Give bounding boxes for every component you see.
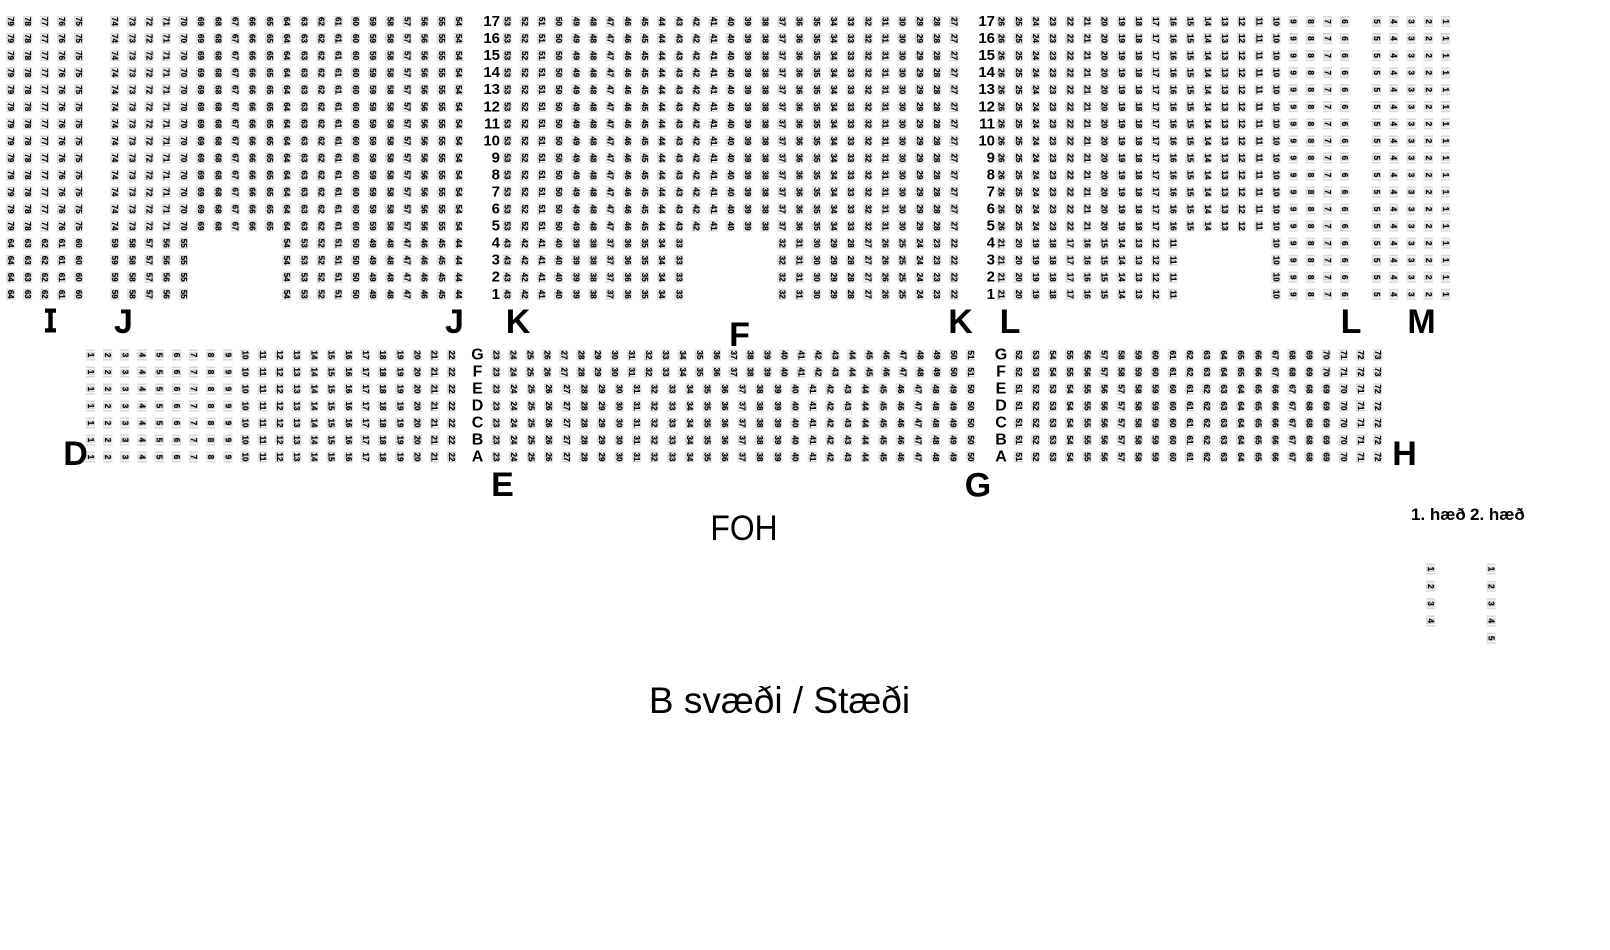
svg-text:33: 33 bbox=[846, 102, 855, 111]
svg-text:11: 11 bbox=[979, 115, 995, 132]
svg-text:55: 55 bbox=[437, 51, 446, 60]
svg-text:33: 33 bbox=[674, 290, 683, 299]
svg-text:13: 13 bbox=[1134, 273, 1143, 282]
svg-text:23: 23 bbox=[1048, 205, 1057, 214]
svg-text:38: 38 bbox=[760, 119, 769, 128]
svg-text:58: 58 bbox=[385, 68, 394, 77]
svg-text:31: 31 bbox=[881, 68, 890, 77]
svg-text:26: 26 bbox=[997, 188, 1006, 197]
svg-text:47: 47 bbox=[606, 136, 615, 145]
svg-text:74: 74 bbox=[110, 119, 119, 128]
svg-text:52: 52 bbox=[520, 34, 529, 43]
svg-text:20: 20 bbox=[1100, 222, 1109, 231]
svg-text:16: 16 bbox=[1168, 205, 1177, 214]
svg-text:53: 53 bbox=[299, 239, 308, 248]
svg-text:69: 69 bbox=[196, 119, 205, 128]
svg-text:52: 52 bbox=[317, 239, 326, 248]
svg-text:9: 9 bbox=[492, 149, 500, 166]
svg-text:43: 43 bbox=[674, 153, 683, 162]
svg-text:20: 20 bbox=[1014, 239, 1023, 248]
svg-text:77: 77 bbox=[40, 102, 49, 111]
svg-text:62: 62 bbox=[40, 290, 49, 299]
svg-text:60: 60 bbox=[351, 85, 360, 94]
svg-text:18: 18 bbox=[1048, 273, 1057, 282]
svg-text:40: 40 bbox=[726, 171, 735, 180]
svg-text:64: 64 bbox=[282, 68, 291, 77]
svg-text:3: 3 bbox=[987, 252, 995, 269]
svg-text:76: 76 bbox=[57, 102, 66, 111]
svg-text:46: 46 bbox=[420, 256, 429, 265]
svg-text:16: 16 bbox=[1168, 171, 1177, 180]
svg-text:36: 36 bbox=[623, 273, 632, 282]
svg-text:72: 72 bbox=[145, 68, 154, 77]
svg-text:50: 50 bbox=[554, 102, 563, 111]
svg-text:4: 4 bbox=[1389, 156, 1398, 161]
svg-text:15: 15 bbox=[1186, 171, 1195, 180]
svg-text:42: 42 bbox=[692, 171, 701, 180]
svg-text:66: 66 bbox=[248, 51, 257, 60]
svg-text:75: 75 bbox=[74, 205, 83, 214]
svg-text:6: 6 bbox=[1340, 190, 1349, 195]
svg-text:75: 75 bbox=[74, 188, 83, 197]
svg-text:16: 16 bbox=[1168, 222, 1177, 231]
svg-text:62: 62 bbox=[317, 136, 326, 145]
svg-text:34: 34 bbox=[657, 239, 666, 248]
svg-text:23: 23 bbox=[1048, 34, 1057, 43]
svg-text:27: 27 bbox=[949, 51, 958, 60]
svg-text:27: 27 bbox=[863, 239, 872, 248]
svg-text:62: 62 bbox=[317, 68, 326, 77]
svg-text:36: 36 bbox=[795, 188, 804, 197]
svg-text:8: 8 bbox=[492, 167, 500, 184]
svg-text:54: 54 bbox=[454, 17, 463, 26]
svg-text:12: 12 bbox=[483, 98, 500, 115]
svg-text:50: 50 bbox=[351, 239, 360, 248]
svg-text:40: 40 bbox=[726, 102, 735, 111]
svg-text:34: 34 bbox=[657, 273, 666, 282]
svg-text:33: 33 bbox=[846, 68, 855, 77]
svg-text:55: 55 bbox=[437, 222, 446, 231]
svg-text:11: 11 bbox=[1254, 188, 1263, 197]
svg-text:74: 74 bbox=[110, 136, 119, 145]
svg-text:15: 15 bbox=[1100, 239, 1109, 248]
svg-text:29: 29 bbox=[915, 17, 924, 26]
svg-text:9: 9 bbox=[1289, 190, 1298, 195]
svg-text:10: 10 bbox=[1272, 34, 1281, 43]
svg-text:39: 39 bbox=[743, 188, 752, 197]
svg-text:38: 38 bbox=[589, 239, 598, 248]
svg-text:50: 50 bbox=[554, 85, 563, 94]
svg-text:61: 61 bbox=[334, 222, 343, 231]
svg-text:14: 14 bbox=[978, 64, 995, 81]
svg-text:20: 20 bbox=[1100, 68, 1109, 77]
svg-text:14: 14 bbox=[1117, 256, 1126, 265]
svg-text:69: 69 bbox=[196, 136, 205, 145]
svg-text:3: 3 bbox=[1407, 122, 1416, 127]
svg-text:14: 14 bbox=[1203, 68, 1212, 77]
svg-text:61: 61 bbox=[334, 34, 343, 43]
svg-text:22: 22 bbox=[949, 273, 958, 282]
svg-text:64: 64 bbox=[282, 119, 291, 128]
svg-text:33: 33 bbox=[674, 256, 683, 265]
svg-text:4: 4 bbox=[1389, 19, 1398, 24]
svg-text:68: 68 bbox=[213, 34, 222, 43]
svg-text:26: 26 bbox=[997, 51, 1006, 60]
svg-text:22: 22 bbox=[1065, 34, 1074, 43]
svg-text:4: 4 bbox=[1389, 139, 1398, 144]
svg-text:73: 73 bbox=[127, 68, 136, 77]
svg-text:42: 42 bbox=[692, 222, 701, 231]
svg-text:25: 25 bbox=[1014, 119, 1023, 128]
svg-text:75: 75 bbox=[74, 119, 83, 128]
svg-text:14: 14 bbox=[1203, 17, 1212, 26]
svg-text:47: 47 bbox=[606, 51, 615, 60]
svg-text:69: 69 bbox=[196, 188, 205, 197]
svg-text:46: 46 bbox=[623, 153, 632, 162]
svg-text:38: 38 bbox=[760, 34, 769, 43]
svg-text:24: 24 bbox=[1031, 68, 1040, 77]
svg-text:58: 58 bbox=[385, 153, 394, 162]
svg-text:44: 44 bbox=[657, 222, 666, 231]
svg-text:37: 37 bbox=[778, 153, 787, 162]
svg-text:8: 8 bbox=[1306, 19, 1315, 24]
svg-text:77: 77 bbox=[40, 222, 49, 231]
svg-text:16: 16 bbox=[1168, 85, 1177, 94]
svg-text:78: 78 bbox=[23, 34, 32, 43]
svg-text:10: 10 bbox=[1272, 17, 1281, 26]
svg-text:63: 63 bbox=[299, 222, 308, 231]
svg-text:8: 8 bbox=[1306, 36, 1315, 41]
svg-text:26: 26 bbox=[997, 34, 1006, 43]
svg-text:65: 65 bbox=[265, 68, 274, 77]
svg-text:70: 70 bbox=[179, 17, 188, 26]
svg-text:57: 57 bbox=[403, 34, 412, 43]
svg-text:20: 20 bbox=[1014, 256, 1023, 265]
svg-text:34: 34 bbox=[657, 290, 666, 299]
svg-text:72: 72 bbox=[145, 222, 154, 231]
svg-text:36: 36 bbox=[795, 85, 804, 94]
svg-text:63: 63 bbox=[299, 119, 308, 128]
svg-text:58: 58 bbox=[385, 34, 394, 43]
svg-text:38: 38 bbox=[589, 273, 598, 282]
svg-text:54: 54 bbox=[454, 51, 463, 60]
svg-text:7: 7 bbox=[1323, 122, 1332, 127]
svg-text:20: 20 bbox=[1100, 205, 1109, 214]
svg-text:78: 78 bbox=[23, 17, 32, 26]
svg-text:58: 58 bbox=[385, 85, 394, 94]
svg-text:9: 9 bbox=[1289, 292, 1298, 297]
svg-text:51: 51 bbox=[537, 51, 546, 60]
svg-text:42: 42 bbox=[520, 239, 529, 248]
svg-text:63: 63 bbox=[23, 239, 32, 248]
svg-text:12: 12 bbox=[1237, 85, 1246, 94]
svg-text:42: 42 bbox=[520, 290, 529, 299]
svg-text:42: 42 bbox=[520, 256, 529, 265]
svg-text:35: 35 bbox=[812, 119, 821, 128]
svg-text:31: 31 bbox=[881, 85, 890, 94]
svg-text:49: 49 bbox=[571, 188, 580, 197]
svg-text:31: 31 bbox=[881, 34, 890, 43]
svg-text:16: 16 bbox=[1168, 34, 1177, 43]
svg-text:24: 24 bbox=[1031, 188, 1040, 197]
svg-text:63: 63 bbox=[299, 205, 308, 214]
svg-text:76: 76 bbox=[57, 205, 66, 214]
svg-text:72: 72 bbox=[145, 85, 154, 94]
svg-text:79: 79 bbox=[6, 222, 15, 231]
svg-text:3: 3 bbox=[492, 252, 500, 269]
svg-text:31: 31 bbox=[881, 102, 890, 111]
svg-text:33: 33 bbox=[674, 239, 683, 248]
svg-text:46: 46 bbox=[420, 239, 429, 248]
svg-text:52: 52 bbox=[520, 17, 529, 26]
svg-text:30: 30 bbox=[898, 102, 907, 111]
svg-text:36: 36 bbox=[795, 136, 804, 145]
svg-text:78: 78 bbox=[23, 153, 32, 162]
svg-text:48: 48 bbox=[589, 17, 598, 26]
svg-text:69: 69 bbox=[196, 153, 205, 162]
svg-text:23: 23 bbox=[932, 239, 941, 248]
svg-text:77: 77 bbox=[40, 68, 49, 77]
svg-text:32: 32 bbox=[863, 17, 872, 26]
svg-text:11: 11 bbox=[1168, 239, 1177, 248]
svg-text:27: 27 bbox=[949, 188, 958, 197]
svg-text:73: 73 bbox=[127, 119, 136, 128]
svg-text:66: 66 bbox=[248, 171, 257, 180]
svg-text:36: 36 bbox=[623, 239, 632, 248]
svg-text:39: 39 bbox=[743, 171, 752, 180]
svg-text:6: 6 bbox=[1340, 105, 1349, 110]
svg-text:24: 24 bbox=[1031, 136, 1040, 145]
svg-text:29: 29 bbox=[915, 153, 924, 162]
svg-text:78: 78 bbox=[23, 51, 32, 60]
svg-text:77: 77 bbox=[40, 119, 49, 128]
svg-text:13: 13 bbox=[1134, 290, 1143, 299]
svg-text:48: 48 bbox=[589, 188, 598, 197]
svg-text:9: 9 bbox=[1289, 156, 1298, 161]
svg-text:46: 46 bbox=[623, 68, 632, 77]
svg-text:28: 28 bbox=[932, 17, 941, 26]
svg-text:63: 63 bbox=[299, 51, 308, 60]
svg-text:6: 6 bbox=[1340, 258, 1349, 263]
svg-text:38: 38 bbox=[760, 222, 769, 231]
svg-text:41: 41 bbox=[709, 153, 718, 162]
svg-text:49: 49 bbox=[368, 256, 377, 265]
svg-text:11: 11 bbox=[1254, 85, 1263, 94]
svg-text:42: 42 bbox=[520, 273, 529, 282]
svg-text:49: 49 bbox=[571, 205, 580, 214]
svg-text:71: 71 bbox=[162, 119, 171, 128]
svg-text:67: 67 bbox=[231, 51, 240, 60]
svg-text:54: 54 bbox=[454, 205, 463, 214]
svg-text:56: 56 bbox=[420, 102, 429, 111]
svg-text:51: 51 bbox=[537, 136, 546, 145]
svg-text:10: 10 bbox=[483, 132, 500, 149]
svg-text:22: 22 bbox=[1065, 51, 1074, 60]
svg-text:65: 65 bbox=[265, 205, 274, 214]
svg-text:73: 73 bbox=[127, 34, 136, 43]
svg-text:51: 51 bbox=[537, 85, 546, 94]
svg-text:53: 53 bbox=[503, 222, 512, 231]
svg-text:72: 72 bbox=[145, 171, 154, 180]
svg-text:57: 57 bbox=[403, 68, 412, 77]
svg-text:71: 71 bbox=[162, 17, 171, 26]
svg-text:60: 60 bbox=[351, 222, 360, 231]
svg-text:30: 30 bbox=[812, 273, 821, 282]
svg-text:9: 9 bbox=[1289, 224, 1298, 229]
svg-text:38: 38 bbox=[760, 17, 769, 26]
svg-text:45: 45 bbox=[640, 119, 649, 128]
svg-text:50: 50 bbox=[351, 290, 360, 299]
svg-text:44: 44 bbox=[657, 102, 666, 111]
svg-text:34: 34 bbox=[829, 85, 838, 94]
svg-text:27: 27 bbox=[949, 68, 958, 77]
svg-text:78: 78 bbox=[23, 102, 32, 111]
svg-text:50: 50 bbox=[554, 51, 563, 60]
svg-text:49: 49 bbox=[571, 85, 580, 94]
svg-text:15: 15 bbox=[1186, 68, 1195, 77]
svg-text:54: 54 bbox=[454, 136, 463, 145]
svg-text:76: 76 bbox=[57, 136, 66, 145]
svg-text:52: 52 bbox=[520, 68, 529, 77]
svg-text:41: 41 bbox=[709, 17, 718, 26]
svg-text:75: 75 bbox=[74, 17, 83, 26]
svg-text:40: 40 bbox=[554, 290, 563, 299]
svg-text:26: 26 bbox=[997, 222, 1006, 231]
svg-text:40: 40 bbox=[726, 119, 735, 128]
svg-text:59: 59 bbox=[110, 273, 119, 282]
svg-text:55: 55 bbox=[437, 68, 446, 77]
svg-text:51: 51 bbox=[537, 102, 546, 111]
svg-text:2: 2 bbox=[1424, 70, 1433, 75]
svg-text:2: 2 bbox=[1424, 19, 1433, 24]
svg-text:14: 14 bbox=[1203, 34, 1212, 43]
svg-text:32: 32 bbox=[863, 171, 872, 180]
svg-text:59: 59 bbox=[110, 290, 119, 299]
svg-text:57: 57 bbox=[145, 256, 154, 265]
svg-text:51: 51 bbox=[334, 256, 343, 265]
svg-text:45: 45 bbox=[640, 171, 649, 180]
svg-text:15: 15 bbox=[978, 47, 995, 64]
svg-text:56: 56 bbox=[162, 239, 171, 248]
svg-text:23: 23 bbox=[1048, 119, 1057, 128]
svg-text:15: 15 bbox=[1186, 119, 1195, 128]
svg-text:9: 9 bbox=[1289, 36, 1298, 41]
svg-text:54: 54 bbox=[454, 171, 463, 180]
svg-text:35: 35 bbox=[640, 239, 649, 248]
svg-text:19: 19 bbox=[1031, 239, 1040, 248]
svg-text:13: 13 bbox=[1220, 102, 1229, 111]
svg-text:35: 35 bbox=[812, 136, 821, 145]
svg-text:78: 78 bbox=[23, 136, 32, 145]
svg-text:63: 63 bbox=[299, 136, 308, 145]
svg-text:11: 11 bbox=[1254, 205, 1263, 214]
svg-text:42: 42 bbox=[692, 119, 701, 128]
svg-text:59: 59 bbox=[368, 205, 377, 214]
svg-text:57: 57 bbox=[403, 205, 412, 214]
svg-text:11: 11 bbox=[484, 115, 500, 132]
svg-text:3: 3 bbox=[1407, 156, 1416, 161]
svg-text:70: 70 bbox=[179, 205, 188, 214]
svg-text:68: 68 bbox=[213, 171, 222, 180]
svg-text:65: 65 bbox=[265, 153, 274, 162]
svg-text:78: 78 bbox=[23, 222, 32, 231]
svg-text:32: 32 bbox=[778, 290, 787, 299]
svg-text:37: 37 bbox=[778, 51, 787, 60]
svg-text:35: 35 bbox=[812, 171, 821, 180]
svg-text:20: 20 bbox=[1100, 188, 1109, 197]
svg-text:37: 37 bbox=[606, 256, 615, 265]
svg-text:43: 43 bbox=[503, 273, 512, 282]
svg-text:3: 3 bbox=[1407, 53, 1416, 58]
svg-text:36: 36 bbox=[795, 51, 804, 60]
svg-text:16: 16 bbox=[1168, 136, 1177, 145]
svg-text:47: 47 bbox=[403, 256, 412, 265]
svg-text:79: 79 bbox=[6, 136, 15, 145]
svg-text:63: 63 bbox=[23, 256, 32, 265]
svg-text:49: 49 bbox=[571, 17, 580, 26]
svg-text:46: 46 bbox=[623, 17, 632, 26]
svg-text:41: 41 bbox=[709, 171, 718, 180]
svg-text:77: 77 bbox=[40, 85, 49, 94]
svg-text:17: 17 bbox=[1151, 34, 1160, 43]
svg-text:21: 21 bbox=[1083, 153, 1092, 162]
svg-text:17: 17 bbox=[1151, 85, 1160, 94]
svg-text:20: 20 bbox=[1100, 51, 1109, 60]
svg-text:63: 63 bbox=[299, 153, 308, 162]
svg-text:9: 9 bbox=[1289, 258, 1298, 263]
svg-text:60: 60 bbox=[351, 17, 360, 26]
svg-text:7: 7 bbox=[1323, 275, 1332, 280]
svg-text:40: 40 bbox=[726, 85, 735, 94]
svg-text:50: 50 bbox=[351, 256, 360, 265]
svg-text:16: 16 bbox=[1168, 102, 1177, 111]
svg-text:47: 47 bbox=[606, 17, 615, 26]
svg-text:42: 42 bbox=[692, 51, 701, 60]
svg-text:41: 41 bbox=[709, 222, 718, 231]
svg-text:18: 18 bbox=[1134, 136, 1143, 145]
svg-text:3: 3 bbox=[1407, 87, 1416, 92]
svg-text:64: 64 bbox=[282, 205, 291, 214]
svg-text:20: 20 bbox=[1100, 34, 1109, 43]
svg-text:35: 35 bbox=[812, 222, 821, 231]
svg-text:73: 73 bbox=[127, 102, 136, 111]
svg-text:11: 11 bbox=[1254, 120, 1263, 129]
svg-text:10: 10 bbox=[1272, 136, 1281, 145]
svg-text:47: 47 bbox=[606, 85, 615, 94]
svg-text:29: 29 bbox=[915, 136, 924, 145]
svg-text:50: 50 bbox=[554, 119, 563, 128]
svg-text:27: 27 bbox=[949, 102, 958, 111]
svg-text:6: 6 bbox=[1340, 36, 1349, 41]
svg-text:52: 52 bbox=[520, 205, 529, 214]
svg-text:20: 20 bbox=[1014, 273, 1023, 282]
svg-text:76: 76 bbox=[57, 171, 66, 180]
svg-text:6: 6 bbox=[1340, 241, 1349, 246]
svg-text:19: 19 bbox=[1117, 119, 1126, 128]
svg-text:48: 48 bbox=[589, 205, 598, 214]
svg-text:58: 58 bbox=[127, 290, 136, 299]
svg-text:25: 25 bbox=[898, 273, 907, 282]
svg-text:59: 59 bbox=[110, 256, 119, 265]
svg-text:5: 5 bbox=[1372, 70, 1381, 75]
svg-text:23: 23 bbox=[1048, 85, 1057, 94]
svg-text:78: 78 bbox=[23, 171, 32, 180]
svg-text:30: 30 bbox=[898, 171, 907, 180]
svg-text:21: 21 bbox=[1083, 17, 1092, 26]
svg-text:78: 78 bbox=[23, 68, 32, 77]
svg-text:52: 52 bbox=[520, 171, 529, 180]
svg-text:21: 21 bbox=[997, 290, 1006, 299]
